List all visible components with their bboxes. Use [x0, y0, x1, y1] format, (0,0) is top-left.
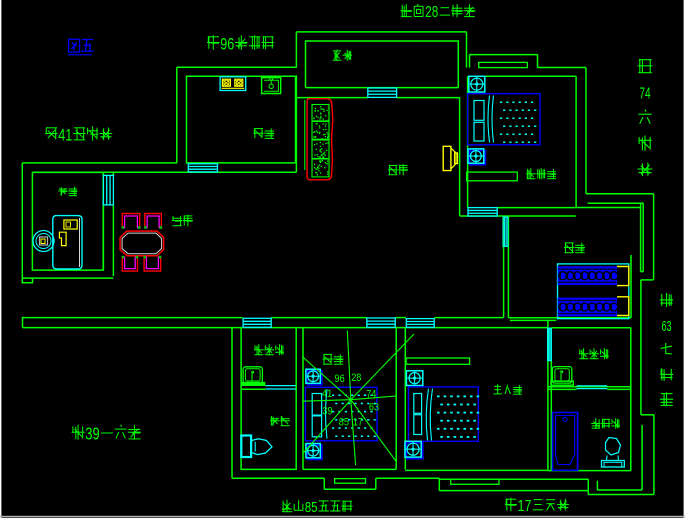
svg-text:28: 28 — [351, 372, 361, 384]
svg-text:39: 39 — [85, 424, 99, 444]
svg-text:17: 17 — [353, 416, 363, 428]
svg-text:28: 28 — [425, 4, 438, 21]
svg-text:41: 41 — [58, 126, 72, 145]
svg-text:41: 41 — [322, 388, 332, 400]
svg-text:85: 85 — [305, 500, 318, 516]
svg-text:74: 74 — [639, 86, 650, 103]
svg-text:74: 74 — [366, 388, 376, 400]
svg-text:96: 96 — [220, 35, 234, 54]
svg-text:85: 85 — [339, 416, 349, 428]
svg-text:63: 63 — [369, 401, 379, 413]
svg-text:96: 96 — [335, 373, 345, 385]
svg-text:63: 63 — [662, 319, 672, 335]
svg-text:39: 39 — [322, 405, 332, 417]
svg-text:17: 17 — [518, 498, 532, 515]
